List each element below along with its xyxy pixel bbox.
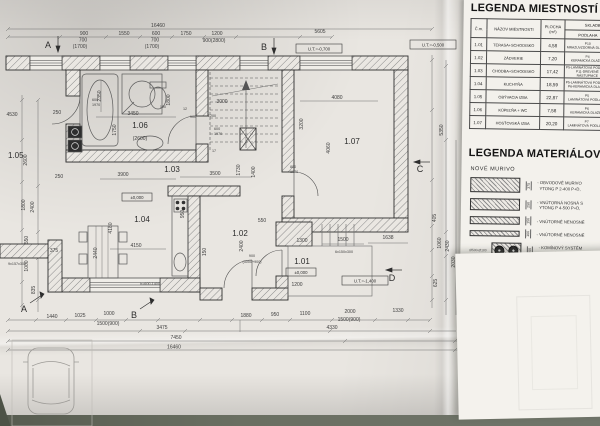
chair — [79, 254, 87, 264]
col-header-area-line2: (m²) — [549, 29, 556, 34]
dimension-label: 700 — [151, 38, 160, 44]
material-item: 150 - VNÚTORNÉ NENOSNÉ — [470, 216, 600, 226]
room-label-1-06-sub: (2600) — [133, 136, 148, 142]
material-label: - VNÚTORNÉ NENOSNÉ — [537, 232, 585, 238]
material-item: 250 - VNÚTORNÁ NOSNÁ S YTONG P 4-500 P+D… — [470, 198, 600, 212]
car-sketch — [12, 340, 92, 426]
material-label: - VNÚTORNÁ NOSNÁ S YTONG P 4-500 P+D, — [537, 200, 583, 212]
room-floor: P7LAMINÁTOVÁ PODLAHA — [564, 117, 600, 131]
chair — [79, 232, 87, 242]
material-item: 100 - VNÚTORNÉ NENOSNÉ — [470, 230, 600, 238]
room-name: CHODBA+SCHODISKO — [486, 64, 540, 78]
room-area: 4,58 — [541, 39, 565, 52]
door-dim: (3000+900) — [243, 260, 262, 264]
dimension-label: 16460 — [167, 345, 181, 351]
photo-of-floor-plan: U.T.=-0,700 U.T.=-0,500 U.T.=-1,400 ±0,0… — [0, 0, 600, 426]
floor-line2: KERAMICKÁ DLAŽBA — [571, 58, 600, 62]
grid-marker-a-bottom: A — [21, 304, 27, 314]
door-dim: 900 — [249, 254, 255, 258]
dimension-label: 1330 — [392, 308, 403, 314]
room-number: 1.03 — [470, 64, 486, 78]
chimney-size-note: Ø500-Ø180 — [469, 248, 486, 252]
material-item: 375 - OBVODOVÉ MURIVO YTONG P 2-400 P+D, — [470, 177, 600, 194]
thickness-dim: 250 — [525, 201, 531, 210]
room-number: 1.01 — [471, 38, 487, 51]
dimension-label: 550 — [24, 236, 30, 245]
dimension-label: 1025 — [74, 313, 85, 319]
dimension-label: 4150 — [130, 243, 141, 249]
dimension-label: 625 — [433, 279, 439, 288]
dimension-label: 1800 — [166, 94, 172, 105]
room-name: TERASA+SCHODISKO — [487, 38, 541, 52]
dimension-label: 2400 — [239, 240, 245, 251]
dimension-label: 1750 — [112, 124, 118, 135]
dimension-label: 5605 — [314, 29, 325, 35]
floor-line2: LAMINÁTOVÁ PODLAHA — [568, 98, 600, 103]
col-header-name: NÁZOV MIESTNOSTI — [487, 19, 541, 39]
table-row: 1.07 HOSŤOVSKÁ IZBA 20,20 P7LAMINÁTOVÁ P… — [470, 116, 600, 131]
window — [30, 56, 62, 70]
room-name: ZÁDVERIE — [486, 51, 540, 65]
chair — [119, 232, 127, 242]
col-header-area: PLOCHA(m²) — [541, 20, 565, 39]
dimension-label: 7450 — [170, 335, 181, 341]
dimension-label: 1000 — [24, 260, 30, 271]
grid-marker-d: D — [389, 273, 396, 283]
room-name: OBÝVACIA IZBA — [486, 90, 540, 104]
dimension-label: 3450 — [127, 111, 138, 117]
door-dim: 600 — [214, 127, 220, 131]
dimension-label: 2400 — [30, 201, 36, 212]
dimension-label: 1500(900) — [97, 321, 120, 327]
dimension-label: 4080 — [331, 95, 342, 101]
dimension-label: 2000 — [344, 309, 355, 315]
dryer — [68, 140, 82, 152]
dimension-label: 600 — [152, 31, 161, 37]
dimension-label: 900(2800) — [203, 38, 226, 44]
dimension-label: 1500 — [337, 237, 348, 243]
show-through-lines — [531, 315, 579, 390]
dimension-label: 12 — [183, 107, 187, 111]
room-floor: P5-LAMINÁTOVÁ PODLAHAP6-KERAMICKÁ DLAŽBA — [564, 78, 600, 92]
door-guest-room — [294, 172, 318, 196]
kitchen-sink — [174, 253, 186, 271]
material-line2: YTONG P 2-400 P+D, — [537, 186, 580, 192]
washing-machine — [68, 126, 82, 138]
dimension-label: 3000 — [216, 99, 227, 105]
dimension-label: 1638 — [382, 235, 393, 241]
door-dim: 1970 — [92, 103, 100, 107]
room-number: 1.02 — [470, 51, 486, 64]
blank-paper-sheet — [455, 250, 600, 419]
room-number: 1.07 — [470, 116, 486, 129]
door-dim: 1970 — [214, 132, 222, 136]
grid-marker-b-bottom: B — [131, 310, 137, 320]
dimension-label: 1060 — [437, 237, 443, 248]
dimension-label: 375 — [50, 248, 59, 254]
dimension-label: 3475 — [156, 325, 167, 331]
level-label: U.T.=-1,400 — [354, 279, 377, 284]
room-area: 22,87 — [540, 91, 564, 104]
legend-sheet: LEGENDA MIESTNOSTÍ Č.m. NÁZOV MIESTNOSTI… — [460, 0, 600, 270]
grid-marker-b-top: B — [261, 42, 267, 52]
window — [240, 56, 268, 70]
door-dim: 800 — [290, 165, 296, 169]
room-label-1-07: 1.07 — [344, 137, 360, 146]
window — [168, 56, 196, 70]
dimension-label: 405 — [432, 214, 438, 223]
floor-line2: LAMINÁTOVÁ PODLAHA — [568, 124, 600, 129]
material-label: - VNÚTORNÉ NENOSNÉ — [537, 219, 585, 225]
wall-hatch-swatch — [470, 177, 520, 193]
dining-table — [79, 226, 127, 278]
wall-hatch-swatch — [470, 198, 520, 211]
dimension-label: 1200 — [211, 31, 222, 37]
shower — [122, 74, 162, 114]
room-number: 1.06 — [470, 103, 486, 116]
legend-rooms-table: Č.m. NÁZOV MIESTNOSTI PLOCHA(m²) SKLADBA… — [469, 18, 600, 131]
room-label-1-03: 1.03 — [164, 165, 180, 174]
level-label: ±0,000 — [130, 195, 144, 200]
room-number: 1.05 — [470, 90, 486, 103]
legend-rooms-title: LEGENDA MIESTNOSTÍ — [471, 2, 600, 16]
wall-hatch-swatch — [470, 216, 520, 225]
floor-line2: MRAZUVZDORNÁ DLAŽBA — [567, 45, 600, 50]
dimension-label: 16460 — [151, 23, 165, 29]
floor-line2: P6-KERAMICKÁ DLAŽBA — [568, 85, 600, 90]
dimension-label: 3200 — [299, 118, 305, 129]
door-dim: 1970 — [290, 170, 298, 174]
legend-materials-title: LEGENDA MATERIÁLOV — [469, 147, 600, 161]
dimension-label: 4060 — [326, 142, 332, 153]
room-name: KUCHYŇA — [486, 77, 540, 91]
dimension-label: 250 — [53, 110, 62, 116]
room-area: 7,20 — [540, 52, 564, 65]
grid-markers — [30, 36, 430, 309]
floor-line2: KERAMICKÁ DLAŽBA — [570, 111, 600, 115]
door-bathroom-right — [168, 116, 196, 144]
dimension-label: 4530 — [6, 112, 17, 118]
dimension-label: 2430 — [445, 240, 451, 251]
room-area: 18,59 — [540, 78, 564, 91]
dimension-label: 1000 — [103, 311, 114, 317]
dimension-label: 4330 — [326, 325, 337, 331]
room-number: 1.04 — [470, 77, 486, 90]
thickness-dim: 150 — [525, 217, 531, 226]
material-line2: YTONG P 4-500 P+D, — [537, 205, 580, 211]
dimension-label: 835 — [31, 286, 37, 295]
grid-marker-a-top: A — [45, 40, 51, 50]
dimension-label: 1300 — [296, 238, 307, 244]
dimension-label: 900 — [80, 31, 89, 37]
dimension-label: 3500 — [209, 171, 220, 177]
stair-note: 6x150x300 — [335, 250, 353, 254]
room-label-1-06: 1.06 — [132, 121, 148, 130]
dimension-label: 1100 — [300, 311, 311, 317]
dimension-label: 950 — [271, 312, 280, 318]
dimension-label: 2600 — [23, 154, 29, 165]
room-area: 17,42 — [540, 65, 564, 79]
window-note: h=600-1400 — [140, 282, 160, 286]
window — [100, 56, 130, 70]
dimension-label: 1500(900) — [338, 317, 361, 323]
dimension-label: 3900 — [117, 172, 128, 178]
room-label-1-04: 1.04 — [134, 215, 150, 224]
room-name: HOSŤOVSKÁ IZBA — [486, 116, 540, 130]
grid-marker-c: C — [417, 164, 424, 174]
dimension-label: 1200 — [291, 282, 302, 288]
room-area: 20,20 — [540, 117, 564, 130]
room-label-1-01: 1.01 — [294, 257, 310, 266]
dimension-label: 1400 — [251, 166, 257, 177]
dimension-label: 2440 — [93, 247, 99, 258]
window — [300, 56, 352, 70]
room-area: 7,58 — [540, 104, 564, 117]
dimension-label: 100 — [160, 105, 166, 109]
col-header-number: Č.m. — [471, 19, 487, 38]
floor-plan-drawing: U.T.=-0,700 U.T.=-0,500 U.T.=-1,400 ±0,0… — [0, 0, 470, 426]
room-floor: P6KERAMICKÁ DLAŽBA — [564, 104, 600, 118]
room-floor: P5-LAMINÁTOVÁ PODLAHAP11-DREVENÉ NÁSTUPN… — [564, 65, 600, 79]
room-floor: P10MRAZUVZDORNÁ DLAŽBA — [565, 39, 600, 53]
dimension-label: 1750 — [180, 31, 191, 37]
dimension-label: 900 — [190, 115, 196, 119]
dimension-label: 2350 — [97, 90, 103, 101]
wall-hatch-swatch — [470, 230, 520, 237]
dimension-label: 550 — [258, 218, 267, 224]
dimension-label: 5350 — [439, 124, 445, 135]
dimension-label: 150 — [202, 248, 208, 257]
room-name: KÚPEĽŇA + WC — [486, 103, 540, 117]
floor-line2: P11-DREVENÉ NÁSTUPNICE — [576, 70, 599, 78]
dimension-label: 1440 — [46, 314, 57, 320]
dimension-label: 1800 — [21, 199, 27, 210]
room-label-1-02: 1.02 — [232, 229, 248, 238]
level-label: U.T.=-0,500 — [422, 43, 445, 48]
dimension-label: 1200 — [208, 114, 216, 118]
dimension-label: (1700) — [73, 44, 88, 50]
legend-materials-subtitle: NOVÉ MURIVO — [470, 166, 600, 174]
level-label: U.T.=-0,700 — [308, 47, 331, 52]
dimension-label: 700 — [79, 38, 88, 44]
room-floor: P5LAMINÁTOVÁ PODLAHA — [564, 91, 600, 105]
dimension-label: 1550 — [118, 31, 129, 37]
room-floor: P4KERAMICKÁ DLAŽBA — [564, 52, 600, 66]
room-label-1-05: 1.05 — [8, 151, 24, 160]
dimension-label: 250 — [55, 174, 64, 180]
chair — [119, 254, 127, 264]
level-label: ±0,000 — [294, 270, 308, 275]
material-label: - OBVODOVÉ MURIVO YTONG P 2-400 P+D, — [537, 180, 582, 192]
thickness-dim: 100 — [525, 230, 531, 239]
dimension-label: 950 — [180, 210, 186, 219]
stair-count: 17 — [212, 149, 216, 153]
thickness-dim: 375 — [526, 181, 532, 190]
door-entry — [224, 260, 252, 288]
dimension-label: 1880 — [240, 313, 251, 319]
dimension-label: 1730 — [236, 164, 242, 175]
dimension-label: (1700) — [145, 44, 160, 50]
dimension-label: 4180 — [108, 222, 114, 233]
